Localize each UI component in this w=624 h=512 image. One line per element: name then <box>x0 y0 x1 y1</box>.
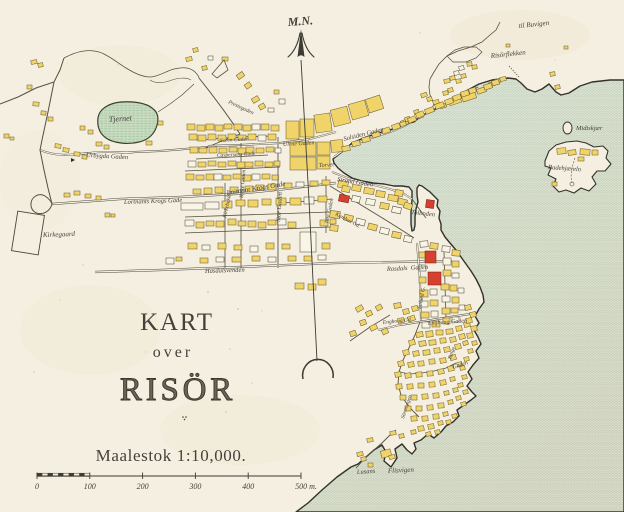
svg-text:Kirkegaard: Kirkegaard <box>42 230 76 239</box>
svg-text:Flisvigen: Flisvigen <box>387 466 415 475</box>
svg-text:400: 400 <box>242 482 254 491</box>
svg-text:Lusans: Lusans <box>356 468 376 476</box>
svg-text:300: 300 <box>188 482 201 491</box>
svg-text:0: 0 <box>35 482 39 491</box>
svg-text:over: over <box>153 344 193 361</box>
svg-text:500 m.: 500 m. <box>295 482 317 491</box>
svg-text:Torvet: Torvet <box>319 162 335 169</box>
svg-text:Tjernet: Tjernet <box>109 113 133 124</box>
svg-text:200: 200 <box>137 482 149 491</box>
svg-text:100: 100 <box>84 482 96 491</box>
svg-text:Hasdalsvenden: Hasdalsvenden <box>204 267 245 275</box>
svg-text:M.N.: M.N. <box>286 13 313 29</box>
svg-text:KART: KART <box>140 309 214 336</box>
svg-text:Midtskjær: Midtskjær <box>575 125 603 132</box>
svg-text:RISÖR: RISÖR <box>120 372 236 408</box>
svg-text:Maalestok 1:10,000.: Maalestok 1:10,000. <box>96 446 247 465</box>
